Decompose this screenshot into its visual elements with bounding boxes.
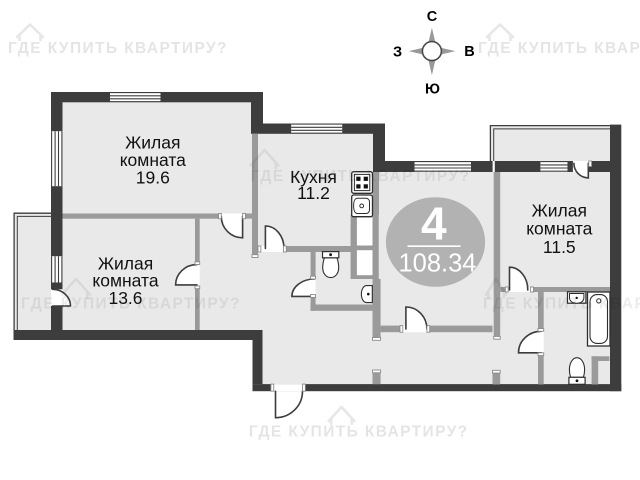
svg-text:ГДЕ КУПИТЬ КВАРТИРУ?: ГДЕ КУПИТЬ КВАРТИРУ? [8, 40, 228, 57]
svg-text:ГДЕ КУПИТЬ КВАРТИРУ?: ГДЕ КУПИТЬ КВАРТИРУ? [478, 40, 640, 57]
svg-text:11.5: 11.5 [543, 237, 576, 257]
svg-text:108.34: 108.34 [399, 250, 477, 278]
svg-text:ГДЕ КУПИТЬ КВАРТИРУ?: ГДЕ КУПИТЬ КВАРТИРУ? [251, 168, 471, 185]
svg-text:13.6: 13.6 [108, 288, 142, 308]
svg-text:11.2: 11.2 [297, 183, 330, 203]
svg-text:комната: комната [526, 219, 592, 239]
svg-text:С: С [427, 9, 438, 25]
svg-text:В: В [464, 44, 474, 60]
svg-text:З: З [393, 45, 402, 61]
svg-text:19.6: 19.6 [136, 167, 170, 187]
svg-text:4: 4 [421, 198, 447, 250]
svg-text:Ю: Ю [425, 82, 440, 98]
svg-text:ГДЕ КУПИТЬ КВАРТИРУ?: ГДЕ КУПИТЬ КВАРТИРУ? [483, 296, 640, 313]
svg-text:Жилая: Жилая [532, 200, 587, 220]
svg-text:ГДЕ КУПИТЬ КВАРТИРУ?: ГДЕ КУПИТЬ КВАРТИРУ? [249, 424, 469, 441]
